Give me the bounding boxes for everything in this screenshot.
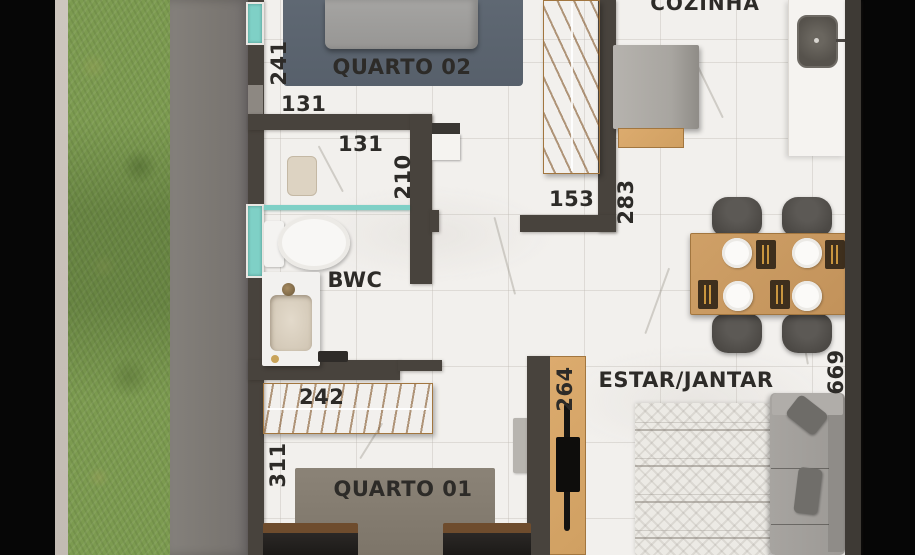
bed1-headboard <box>263 523 358 533</box>
bedroom2-bed <box>325 0 478 49</box>
plate <box>792 281 822 311</box>
label-bedroom1: QUARTO 01 <box>333 477 473 501</box>
kitchen-wood-base <box>618 128 684 148</box>
label-kitchen: COZINHA <box>655 0 755 15</box>
dim-241: 241 <box>267 40 291 86</box>
placemat-cutlery <box>756 240 776 269</box>
vanity-detail-knob <box>271 355 279 363</box>
bathroom-wall-top <box>248 114 432 130</box>
dining-chair <box>782 197 832 236</box>
dim-264: 264 <box>553 366 577 412</box>
vanity-sink-basin <box>270 295 312 351</box>
dim-311: 311 <box>266 442 290 488</box>
fork <box>776 285 778 304</box>
bathroom-wall-bottom-ledge <box>398 360 442 371</box>
bedroom2-window <box>246 2 264 45</box>
dim-131-hall: 131 <box>281 92 326 116</box>
shower-tray <box>287 156 317 196</box>
marble-vein <box>696 63 724 118</box>
tv <box>556 437 580 492</box>
wardrobe-divider-line <box>571 3 573 171</box>
sofa-seam <box>771 524 829 525</box>
kitchen-stove <box>613 45 699 129</box>
bath-mat <box>318 351 348 362</box>
dim-131-bath: 131 <box>338 132 383 156</box>
wall-recess <box>248 85 263 115</box>
label-bathroom: BWC <box>328 268 382 292</box>
dim-153: 153 <box>549 187 594 211</box>
bathroom-door-jamb <box>430 210 439 232</box>
fork <box>831 245 833 264</box>
dim-210: 210 <box>391 154 415 200</box>
bathroom-window <box>246 204 264 278</box>
knife <box>781 285 783 304</box>
placemat-cutlery <box>825 240 845 269</box>
dim-669: 669 <box>824 349 848 395</box>
sink-drain <box>814 38 819 43</box>
bed1 <box>263 533 358 555</box>
vanity-faucet <box>282 283 295 296</box>
bed2-headboard <box>443 523 531 533</box>
marble-vein <box>644 268 669 334</box>
knife <box>709 285 711 304</box>
plate <box>792 238 822 268</box>
placemat-cutlery <box>770 280 790 309</box>
lot-curb-strip <box>55 0 68 555</box>
toilet-bowl <box>278 215 350 270</box>
dim-242: 242 <box>299 385 344 409</box>
bedroom1-dresser <box>513 418 528 473</box>
grass-lawn <box>68 0 170 555</box>
bed2 <box>443 533 531 555</box>
living-room-rug <box>635 403 770 555</box>
dining-chair <box>712 197 762 236</box>
plate <box>723 281 753 311</box>
dining-chair <box>782 314 832 353</box>
wardrobe-divider-line <box>267 408 429 410</box>
fork <box>762 245 764 264</box>
knife <box>767 245 769 264</box>
dim-283: 283 <box>614 179 638 225</box>
marble-vein <box>494 217 516 295</box>
shower-glass-divider <box>264 205 410 210</box>
dining-chair <box>712 314 762 353</box>
hall-wardrobe <box>543 0 600 174</box>
placemat-cutlery <box>698 280 718 309</box>
floor-plan-render: COZINHA QUARTO 02 BWC QUARTO 01 ESTAR/JA… <box>0 0 915 555</box>
side-walkway <box>170 0 250 555</box>
bathroom-door-leaf <box>432 134 460 160</box>
sofa-backrest <box>828 396 845 552</box>
bedroom1-wardrobe <box>263 383 433 434</box>
kitchen-wall-foot <box>520 215 616 232</box>
exterior-wall-right <box>845 0 861 555</box>
knife <box>836 245 838 264</box>
label-bedroom2: QUARTO 02 <box>332 55 472 79</box>
fork <box>704 285 706 304</box>
label-living-dining: ESTAR/JANTAR <box>601 368 771 392</box>
plate <box>722 238 752 268</box>
